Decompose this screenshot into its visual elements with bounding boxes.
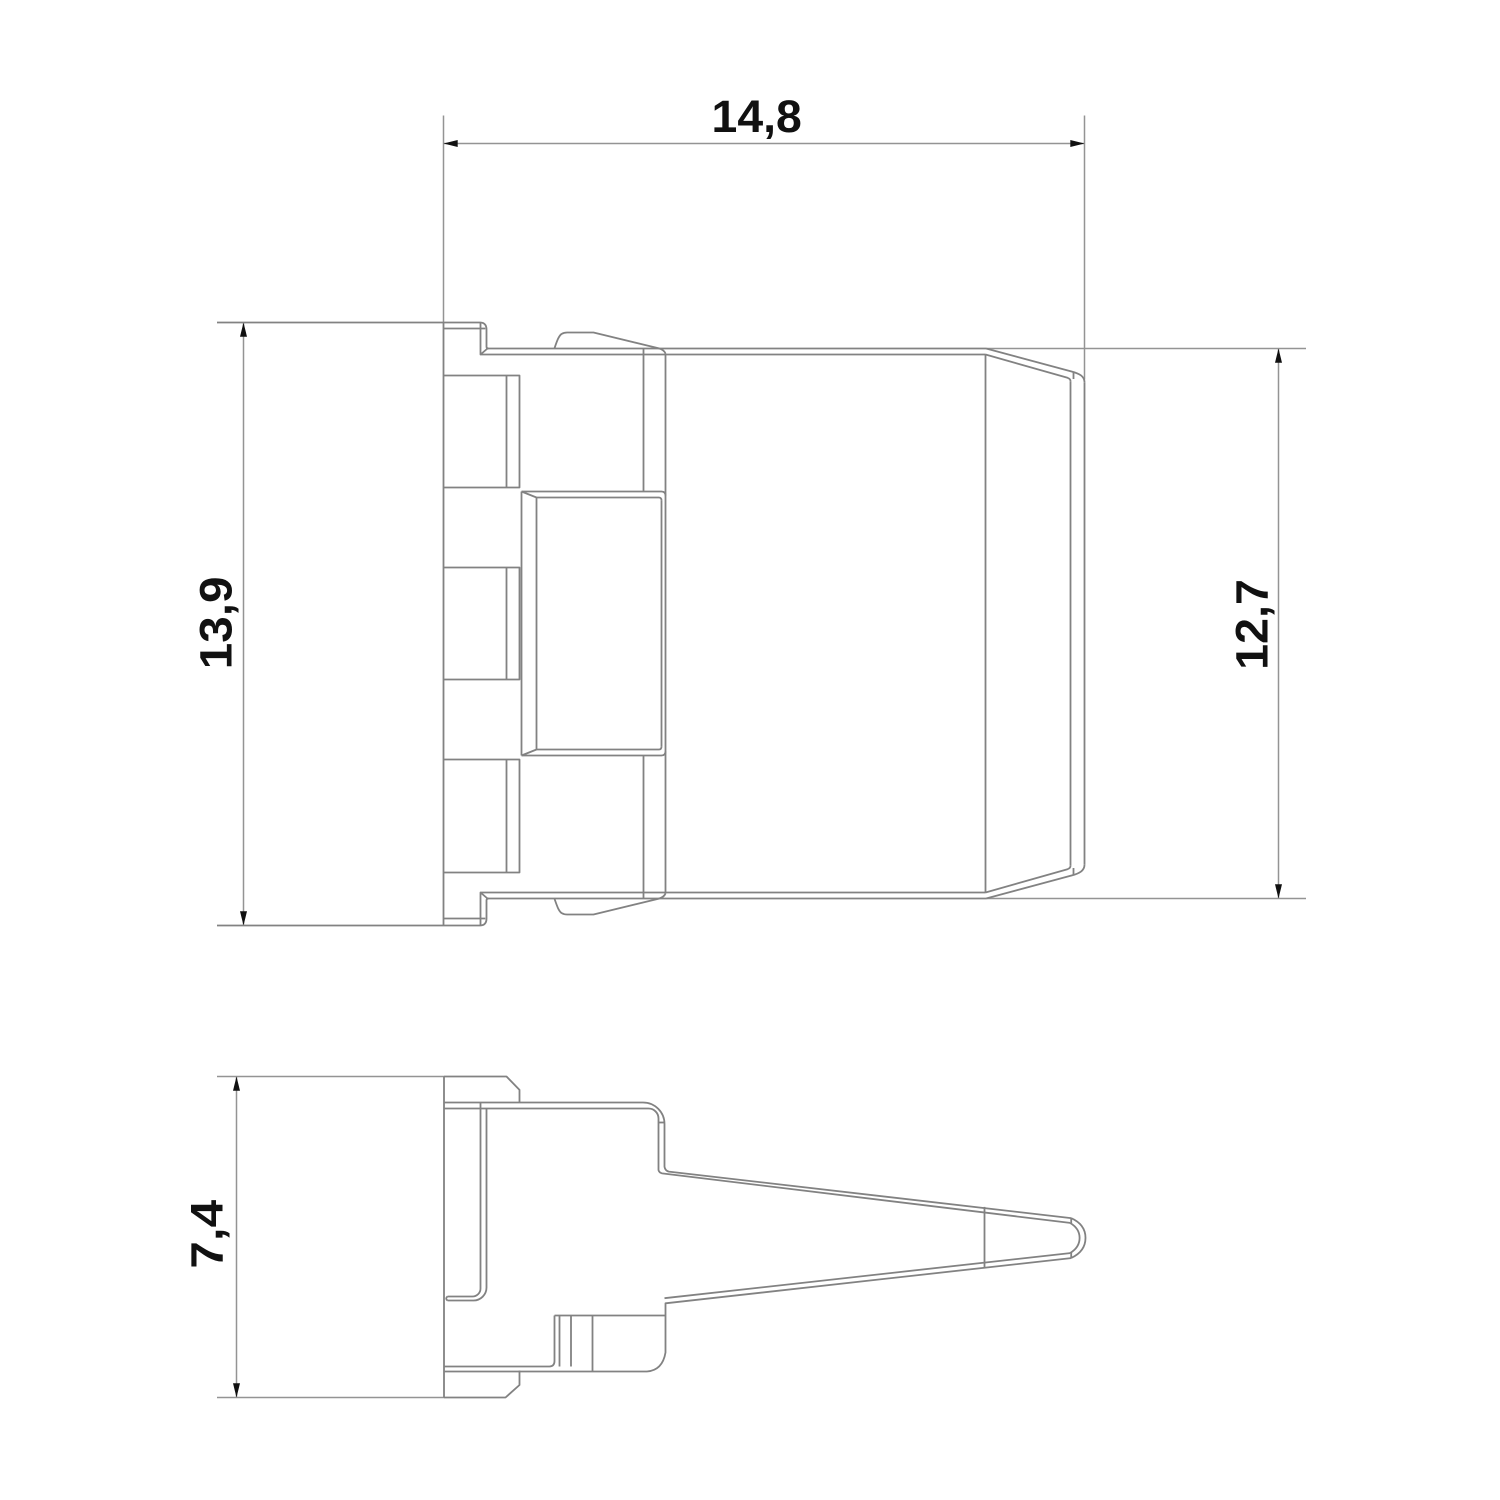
svg-text:7,4: 7,4 <box>182 1200 233 1269</box>
svg-text:14,8: 14,8 <box>712 91 802 142</box>
svg-text:12,7: 12,7 <box>1227 579 1278 670</box>
svg-text:13,9: 13,9 <box>191 577 242 670</box>
